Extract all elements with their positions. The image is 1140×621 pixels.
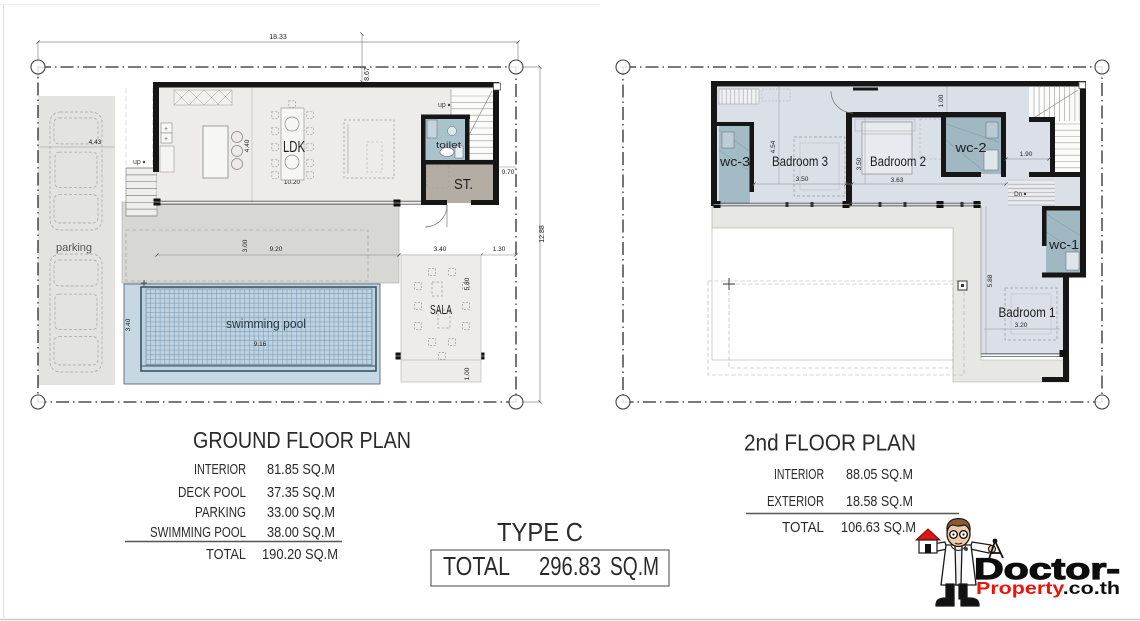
svg-text:INTERIOR: INTERIOR: [194, 461, 246, 478]
svg-text:2nd FLOOR PLAN: 2nd FLOOR PLAN: [744, 430, 916, 456]
svg-text:3.00: 3.00: [242, 239, 249, 252]
svg-text:TOTAL: TOTAL: [782, 519, 824, 536]
svg-text:up: up: [438, 102, 446, 109]
svg-text:EXTERIOR: EXTERIOR: [767, 493, 824, 510]
svg-text:swimming pool: swimming pool: [226, 317, 306, 331]
svg-text:18.58 SQ.M: 18.58 SQ.M: [846, 493, 913, 510]
svg-text:1.00: 1.00: [938, 94, 945, 107]
svg-text:+: +: [164, 126, 168, 133]
svg-text:Badroom 3: Badroom 3: [772, 153, 828, 169]
svg-text:Dn: Dn: [1014, 191, 1023, 198]
svg-text:wc-3: wc-3: [719, 154, 750, 169]
svg-text:LDK: LDK: [283, 139, 305, 156]
svg-text:12.88: 12.88: [539, 225, 546, 243]
svg-text:TYPE C: TYPE C: [497, 517, 583, 547]
svg-text:88.05 SQ.M: 88.05 SQ.M: [846, 466, 913, 483]
svg-text:toilet: toilet: [436, 140, 462, 150]
svg-text:33.00 SQ.M: 33.00 SQ.M: [267, 504, 335, 521]
svg-text:3.40: 3.40: [434, 246, 447, 253]
svg-text:81.85 SQ.M: 81.85 SQ.M: [267, 461, 335, 478]
svg-text:3.40: 3.40: [125, 318, 132, 331]
svg-text:Badroom 1: Badroom 1: [999, 304, 1056, 320]
svg-text:wc-2: wc-2: [954, 140, 986, 155]
svg-text:3.50: 3.50: [796, 176, 809, 183]
svg-text:TOTAL: TOTAL: [443, 551, 510, 581]
svg-text:TOTAL: TOTAL: [206, 546, 246, 563]
svg-text:SWIMMING POOL: SWIMMING POOL: [150, 524, 246, 541]
svg-text:3.50: 3.50: [856, 157, 863, 170]
svg-text:wc-1: wc-1: [1048, 237, 1079, 252]
svg-text:38.00 SQ.M: 38.00 SQ.M: [267, 524, 335, 541]
svg-text:3.20: 3.20: [1015, 322, 1028, 329]
svg-text:INTERIOR: INTERIOR: [774, 466, 824, 483]
svg-text:18.33: 18.33: [269, 34, 287, 41]
svg-text:+: +: [164, 136, 168, 143]
svg-text:DECK POOL: DECK POOL: [178, 484, 246, 501]
svg-text:9.16: 9.16: [254, 341, 267, 348]
svg-text:8.67: 8.67: [364, 67, 371, 81]
svg-text:9.20: 9.20: [270, 246, 283, 253]
svg-text:1.30: 1.30: [493, 246, 506, 253]
svg-text:PARKING: PARKING: [195, 504, 246, 521]
svg-text:1.00: 1.00: [464, 367, 471, 380]
svg-text:ST.: ST.: [454, 176, 473, 193]
svg-text:SQ.M: SQ.M: [610, 551, 659, 581]
svg-text:up: up: [133, 159, 141, 166]
svg-text:296.83: 296.83: [539, 551, 601, 581]
svg-text:106.63 SQ.M: 106.63 SQ.M: [841, 519, 916, 536]
svg-text:1.90: 1.90: [1020, 151, 1033, 158]
svg-text:SALA: SALA: [430, 302, 452, 317]
svg-text:3.63: 3.63: [891, 177, 904, 184]
svg-text:GROUND FLOOR PLAN: GROUND FLOOR PLAN: [193, 427, 411, 453]
svg-text:Badroom 2: Badroom 2: [870, 153, 926, 169]
svg-text:5.88: 5.88: [987, 274, 994, 287]
svg-text:parking: parking: [56, 242, 92, 254]
svg-text:5.80: 5.80: [464, 277, 471, 290]
svg-text:4.54: 4.54: [770, 140, 777, 153]
svg-text:Property.co.th: Property.co.th: [976, 578, 1120, 598]
svg-text:190.20 SQ.M: 190.20 SQ.M: [262, 546, 338, 563]
svg-text:4.43: 4.43: [89, 139, 102, 146]
svg-text:0.70: 0.70: [502, 169, 515, 176]
svg-text:37.35 SQ.M: 37.35 SQ.M: [267, 484, 335, 501]
svg-text:4.40: 4.40: [244, 139, 251, 152]
